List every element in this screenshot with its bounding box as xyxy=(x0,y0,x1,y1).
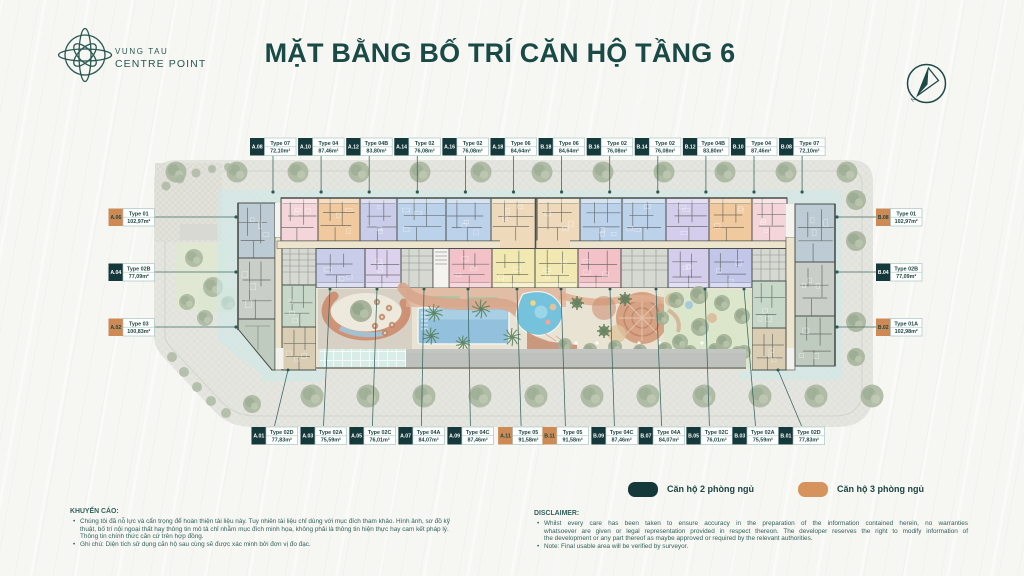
svg-text:Type 07: Type 07 xyxy=(270,141,290,147)
svg-text:87,46m²: 87,46m² xyxy=(318,149,338,155)
svg-text:A.09: A.09 xyxy=(449,434,460,440)
svg-text:76,08m²: 76,08m² xyxy=(415,149,435,155)
svg-text:Type 04A: Type 04A xyxy=(657,430,681,436)
svg-text:83,80m²: 83,80m² xyxy=(366,149,386,155)
svg-text:A.10: A.10 xyxy=(300,145,311,151)
svg-text:A.07: A.07 xyxy=(400,434,411,440)
svg-text:91,58m²: 91,58m² xyxy=(518,438,538,444)
svg-text:75,59m²: 75,59m² xyxy=(753,438,773,444)
svg-text:B.01: B.01 xyxy=(780,434,791,440)
svg-text:75,59m²: 75,59m² xyxy=(321,438,341,444)
svg-text:A.16: A.16 xyxy=(444,145,455,151)
svg-text:76,01m²: 76,01m² xyxy=(370,438,390,444)
svg-text:Type 01: Type 01 xyxy=(896,212,916,218)
svg-text:Type 04: Type 04 xyxy=(751,141,771,147)
svg-text:B.08: B.08 xyxy=(878,215,889,221)
svg-text:Type 04A: Type 04A xyxy=(417,430,441,436)
svg-text:Type 06: Type 06 xyxy=(559,141,579,147)
svg-text:102,98m²: 102,98m² xyxy=(895,329,918,335)
svg-text:Type 02B: Type 02B xyxy=(894,267,918,273)
svg-text:76,08m²: 76,08m² xyxy=(463,149,483,155)
svg-text:84,64m²: 84,64m² xyxy=(559,149,579,155)
svg-text:A.18: A.18 xyxy=(492,145,503,151)
svg-text:Type 02C: Type 02C xyxy=(705,430,729,436)
svg-text:77,09m²: 77,09m² xyxy=(129,274,149,280)
svg-text:B.18: B.18 xyxy=(540,145,551,151)
svg-text:Type 02A: Type 02A xyxy=(751,430,775,436)
svg-text:B.07: B.07 xyxy=(640,434,651,440)
svg-text:76,08m²: 76,08m² xyxy=(607,149,627,155)
svg-text:B.14: B.14 xyxy=(637,145,648,151)
svg-text:A.08: A.08 xyxy=(252,145,263,151)
svg-text:77,09m²: 77,09m² xyxy=(896,274,916,280)
svg-text:102,97m²: 102,97m² xyxy=(127,219,150,225)
svg-text:Type 04C: Type 04C xyxy=(466,430,490,436)
svg-text:Type 07: Type 07 xyxy=(800,141,820,147)
svg-text:Type 04C: Type 04C xyxy=(610,430,634,436)
svg-text:B.10: B.10 xyxy=(733,145,744,151)
svg-text:B.02: B.02 xyxy=(878,325,889,331)
svg-text:72,10m²: 72,10m² xyxy=(799,149,819,155)
svg-text:Type 01: Type 01 xyxy=(129,212,149,218)
svg-text:Type 04B: Type 04B xyxy=(365,141,389,147)
svg-text:87,46m²: 87,46m² xyxy=(751,149,771,155)
svg-text:76,08m²: 76,08m² xyxy=(655,149,675,155)
svg-text:Type 02D: Type 02D xyxy=(797,430,821,436)
svg-text:72,10m²: 72,10m² xyxy=(270,149,290,155)
svg-text:A.11: A.11 xyxy=(500,434,511,440)
svg-text:87,46m²: 87,46m² xyxy=(468,438,488,444)
svg-text:A.14: A.14 xyxy=(396,145,407,151)
svg-text:Type 02: Type 02 xyxy=(655,141,675,147)
svg-text:Type 02C: Type 02C xyxy=(368,430,392,436)
svg-text:Type 04: Type 04 xyxy=(319,141,339,147)
svg-text:B.09: B.09 xyxy=(593,434,604,440)
svg-text:Type 05: Type 05 xyxy=(519,430,539,436)
svg-text:Type 02: Type 02 xyxy=(415,141,435,147)
svg-text:B.03: B.03 xyxy=(734,434,745,440)
svg-text:84,07m²: 84,07m² xyxy=(659,438,679,444)
svg-text:91,58m²: 91,58m² xyxy=(563,438,583,444)
svg-text:Type 03: Type 03 xyxy=(129,322,149,328)
svg-text:B.11: B.11 xyxy=(544,434,555,440)
svg-text:84,07m²: 84,07m² xyxy=(419,438,439,444)
svg-text:Type 04B: Type 04B xyxy=(701,141,725,147)
svg-text:Type 06: Type 06 xyxy=(511,141,531,147)
svg-text:77,83m²: 77,83m² xyxy=(272,438,292,444)
svg-text:Type 02: Type 02 xyxy=(463,141,483,147)
svg-text:B.08: B.08 xyxy=(781,145,792,151)
svg-text:84,64m²: 84,64m² xyxy=(511,149,531,155)
svg-text:Type 01A: Type 01A xyxy=(894,322,918,328)
svg-text:Type 05: Type 05 xyxy=(563,430,583,436)
svg-text:A.05: A.05 xyxy=(351,434,362,440)
svg-text:A.01: A.01 xyxy=(253,434,264,440)
svg-text:Type 02B: Type 02B xyxy=(127,267,151,273)
svg-text:A.02: A.02 xyxy=(110,325,121,331)
svg-text:B.04: B.04 xyxy=(878,270,889,276)
svg-text:83,80m²: 83,80m² xyxy=(703,149,723,155)
svg-text:B.16: B.16 xyxy=(589,145,600,151)
svg-text:B.05: B.05 xyxy=(688,434,699,440)
svg-text:87,46m²: 87,46m² xyxy=(612,438,632,444)
svg-text:B.12: B.12 xyxy=(685,145,696,151)
svg-text:100,83m²: 100,83m² xyxy=(127,329,150,335)
svg-text:77,83m²: 77,83m² xyxy=(799,438,819,444)
svg-text:A.04: A.04 xyxy=(110,270,121,276)
svg-text:Type 02D: Type 02D xyxy=(270,430,294,436)
svg-text:A.06: A.06 xyxy=(110,215,121,221)
svg-text:A.12: A.12 xyxy=(348,145,359,151)
svg-text:A.03: A.03 xyxy=(302,434,313,440)
svg-text:102,97m²: 102,97m² xyxy=(895,219,918,225)
svg-text:Type 02A: Type 02A xyxy=(319,430,343,436)
svg-text:Type 02: Type 02 xyxy=(607,141,627,147)
svg-text:76,01m²: 76,01m² xyxy=(707,438,727,444)
